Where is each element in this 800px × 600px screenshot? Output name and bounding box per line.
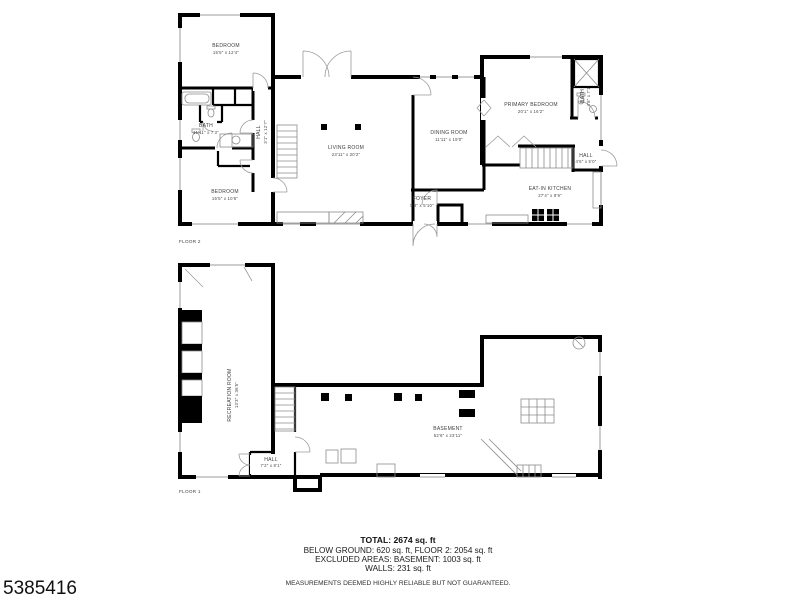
floor2-fixtures [182, 59, 601, 223]
room-label-bedroom-bottom: BEDROOM [211, 189, 239, 195]
floor1-plan: RECREATION ROOM 13'3" x 36'5" HALL 7'2" … [177, 262, 603, 494]
floor1-walls [178, 263, 602, 490]
room-label-bath: BATH [199, 123, 213, 129]
floor1-windows [177, 262, 603, 480]
room-label-recreation-room: RECREATION ROOM [227, 368, 233, 421]
floor2-caption: FLOOR 2 [179, 239, 201, 244]
storage-block [182, 396, 202, 423]
storage-block [182, 373, 202, 380]
summary-excluded: EXCLUDED AREAS: BASEMENT: 1003 sq. ft [315, 555, 481, 564]
column-post [321, 393, 329, 401]
room-dims-living-room: 23'11" x 20'2" [332, 152, 361, 157]
floorplan-svg: BEDROOM 15'5" x 12'4" BATH 11'11" x 7'3"… [0, 0, 800, 600]
column-post [394, 393, 402, 401]
listing-id: 5385416 [3, 578, 77, 599]
floorplan-page: BEDROOM 15'5" x 12'4" BATH 11'11" x 7'3"… [0, 0, 800, 600]
summary-areas: BELOW GROUND: 620 sq. ft, FLOOR 2: 2054 … [304, 546, 494, 555]
room-label-foyer: FOYER [413, 196, 432, 202]
column-post [415, 394, 422, 401]
floor2-plan: BEDROOM 15'5" x 12'4" BATH 11'11" x 7'3"… [177, 12, 617, 246]
column-post [345, 394, 352, 401]
floor1-stairs-icon [275, 387, 295, 431]
room-dims-bedroom-top: 15'5" x 12'4" [213, 50, 239, 55]
room-label-living-room: LIVING ROOM [328, 145, 364, 151]
room-dims-foyer: 5'4" x 5'10" [410, 203, 434, 208]
column-post [459, 409, 475, 417]
beam-line [481, 439, 521, 475]
room-dims-hall-f1: 7'2" x 8'1" [261, 463, 282, 468]
summary-walls: WALLS: 231 sq. ft [365, 564, 431, 573]
utility-grid-box [521, 399, 554, 423]
room-label-dining-room: DINING ROOM [430, 130, 467, 136]
storage-block [182, 344, 202, 351]
storage-block [182, 310, 202, 322]
column-post [459, 390, 475, 398]
column-post [321, 124, 327, 130]
room-dims-dining-room: 11'11" x 19'0" [435, 137, 463, 142]
floor1-caption: FLOOR 1 [179, 489, 201, 494]
room-label-hall-f2: HALL [256, 125, 262, 139]
room-label-primary-bedroom: PRIMARY BEDROOM [504, 102, 558, 108]
room-dims-hall-f2: 3'1" x 12'7" [263, 120, 268, 144]
room-dims-basement: 52'6" x 23'11" [434, 433, 463, 438]
room-dims-hall2-f2: 4'6" x 5'0" [576, 159, 597, 164]
room-dims-primary-bedroom: 20'1" x 16'2" [518, 109, 544, 114]
floor1-doors [185, 267, 310, 476]
room-dims-bedroom-bottom: 15'5" x 10'6" [212, 196, 238, 201]
room-dims-bath: 11'11" x 7'3" [193, 130, 219, 135]
room-dims-recreation-room: 13'3" x 36'5" [234, 382, 239, 408]
column-post [355, 124, 361, 130]
room-label-kitchen: EAT-IN KITCHEN [529, 186, 572, 192]
room-label-basement: BASEMENT [433, 426, 463, 432]
room-dims-kitchen: 27'4" x 8'9" [538, 193, 562, 198]
floor2-stairs-icon [277, 125, 573, 178]
room-label-bedroom-top: BEDROOM [212, 43, 240, 49]
summary-text: TOTAL: 2674 sq. ft BELOW GROUND: 620 sq.… [286, 535, 511, 587]
room-dims-primary-bath: 4'8" x 7'1" [586, 85, 591, 106]
summary-total: TOTAL: 2674 sq. ft [360, 535, 435, 545]
summary-disclaimer: MEASUREMENTS DEEMED HIGHLY RELIABLE BUT … [286, 580, 511, 587]
